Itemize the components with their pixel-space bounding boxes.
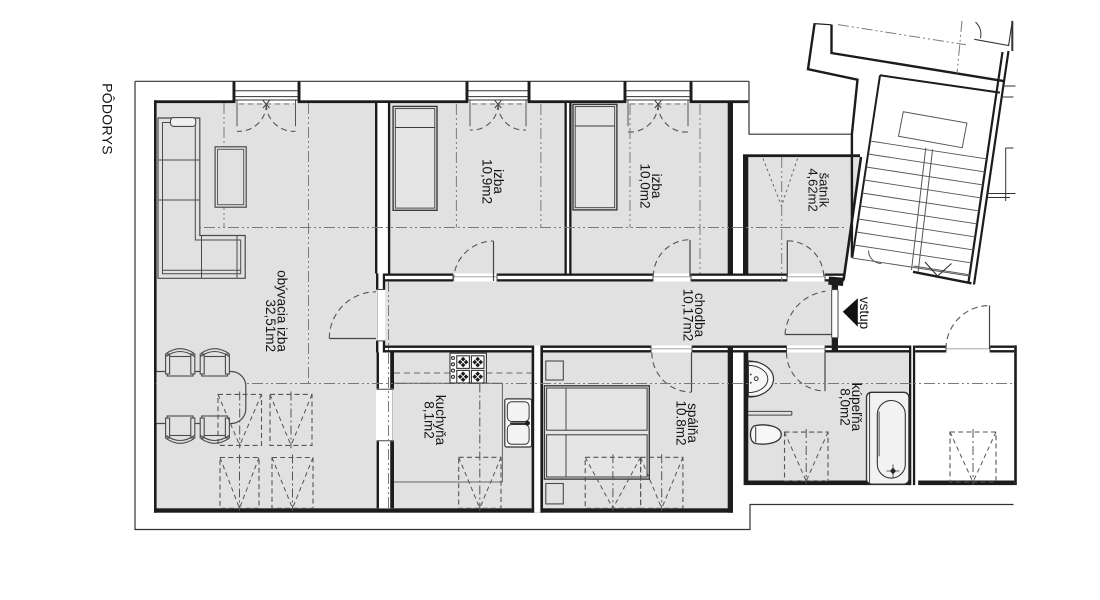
svg-text:PÔDORYS: PÔDORYS bbox=[100, 83, 116, 155]
svg-text:10,0m2: 10,0m2 bbox=[637, 163, 652, 208]
svg-text:10,17m2: 10,17m2 bbox=[680, 289, 695, 342]
svg-text:10,9m2: 10,9m2 bbox=[479, 159, 494, 204]
svg-text:32,51m2: 32,51m2 bbox=[263, 299, 278, 352]
svg-text:8,0m2: 8,0m2 bbox=[837, 388, 852, 426]
svg-text:4,62m2: 4,62m2 bbox=[806, 168, 821, 211]
svg-text:10.8m2: 10.8m2 bbox=[673, 400, 688, 445]
svg-text:8,1m2: 8,1m2 bbox=[421, 401, 436, 439]
svg-text:vstup: vstup bbox=[857, 297, 872, 329]
